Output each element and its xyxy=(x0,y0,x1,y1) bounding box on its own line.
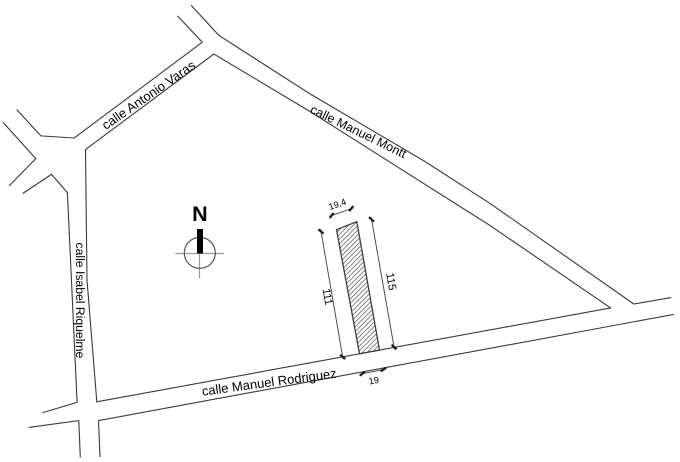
svg-text:19: 19 xyxy=(368,375,380,387)
svg-text:N: N xyxy=(192,202,208,226)
svg-text:calle Isabel Riquelme: calle Isabel Riquelme xyxy=(73,243,87,359)
